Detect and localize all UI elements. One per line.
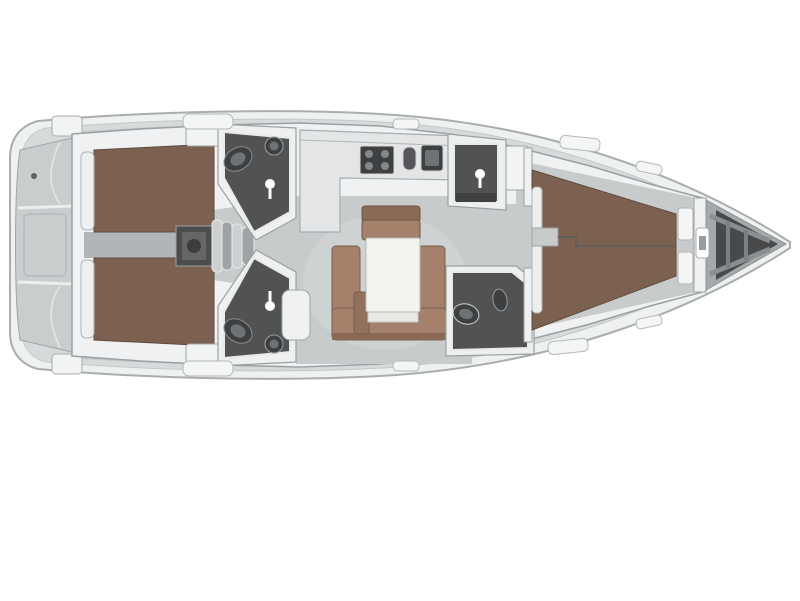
- windlass-drum: [699, 236, 706, 250]
- companionway: [176, 220, 254, 272]
- yacht-floorplan-canvas: Sailing yacht interior layout plan — top…: [0, 0, 800, 601]
- shower-hose: [269, 291, 272, 301]
- stove: [360, 146, 394, 174]
- shower-head-icon: [265, 301, 275, 311]
- aft-berth-top-pillows: [81, 152, 94, 230]
- burner: [381, 162, 389, 170]
- settee-right: [418, 246, 445, 312]
- salon-bench-seat: [362, 220, 420, 240]
- sink-basin: [270, 340, 279, 349]
- step-3: [232, 224, 242, 268]
- yacht-floorplan: Sailing yacht interior layout plan — top…: [0, 0, 800, 601]
- fwd-bulkhead-top: [524, 148, 532, 206]
- galley-sink-basin: [425, 150, 439, 166]
- burner: [365, 162, 373, 170]
- aft-berth-top: [94, 144, 214, 232]
- step-2: [222, 222, 232, 270]
- fwd-bulkhead-bottom: [524, 268, 532, 342]
- wet-locker: [282, 290, 310, 340]
- shower-head-icon: [265, 179, 275, 189]
- owner-berth-pillows: [532, 187, 542, 313]
- hatch: [183, 361, 233, 376]
- foot-cushion-top: [678, 208, 693, 240]
- galley-sink-round: [403, 147, 416, 170]
- shower-head-icon: [475, 169, 485, 179]
- aft-berth-bottom-pillows: [81, 260, 94, 338]
- step-1: [212, 220, 222, 272]
- burner: [381, 150, 389, 158]
- sink-basin: [270, 142, 279, 151]
- deck-fitting-dot: [31, 173, 37, 179]
- shower-hose: [479, 179, 482, 188]
- foot-cushion-bottom: [678, 252, 693, 284]
- burner: [365, 150, 373, 158]
- hatch: [183, 114, 233, 129]
- salon-table: [366, 238, 420, 312]
- locker-seam-top: [18, 206, 72, 208]
- aft-berth-bottom: [94, 258, 214, 346]
- settee-bottom-edge: [332, 333, 446, 340]
- hatch: [393, 119, 419, 129]
- hatch: [393, 361, 419, 371]
- shower-hose: [269, 189, 272, 199]
- engine-pulley: [187, 239, 201, 253]
- berth-step-notch: [532, 228, 558, 246]
- locker-seam-bottom: [18, 282, 72, 284]
- shower-seat: [456, 193, 496, 202]
